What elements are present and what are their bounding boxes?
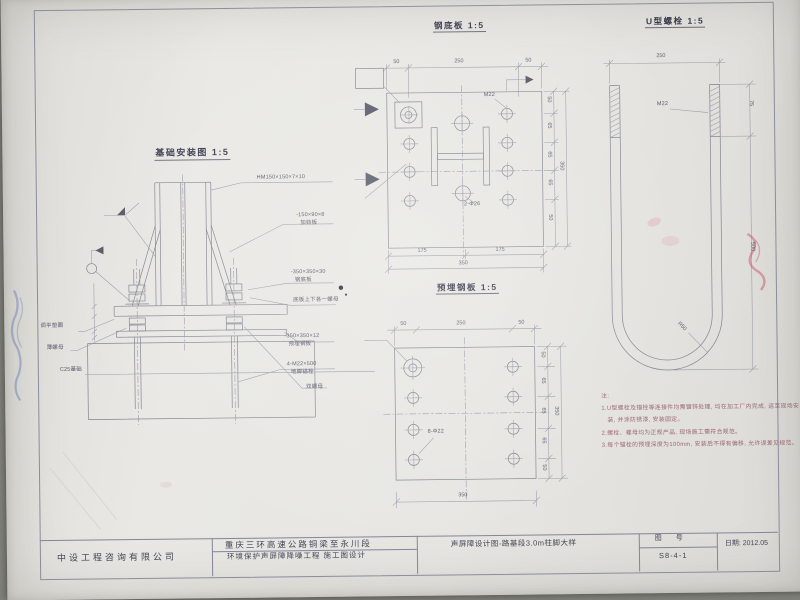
base-plate-title-text: 钢底板 (434, 20, 464, 30)
blue-stamp-mark (12, 290, 21, 400)
dim-bp-right-4: 65 (547, 179, 553, 185)
base-plate-view-lines (355, 62, 571, 274)
dim-bp-right-total: 350 (558, 161, 564, 170)
callout-baseplate-size: -350×350×30 (291, 269, 326, 275)
foundation-title-text: 基础安装图 (155, 147, 208, 158)
drawing-content: 基础安装图 1:5 钢底板 1:5 预埋钢板 1:5 U型螺栓 1:5 HM15… (1, 0, 800, 600)
callout-bp-hole-top: M22 (484, 92, 495, 98)
callout-thin-nut: 薄螺母 (47, 345, 64, 351)
dim-ub-leg-length: 500 (749, 242, 755, 251)
dim-ep-right-5: 50 (541, 464, 547, 470)
callout-column-section: HM150×150×7×10 (257, 174, 306, 181)
dim-bp-right-2: 65 (546, 122, 552, 128)
project-name-line2: 环境保护声屏障降噪工程 施工图设计 (227, 551, 366, 561)
section-cut-arrows (354, 102, 380, 186)
sheet-number-label: 图 号 (655, 535, 689, 543)
callout-stiffener-name: 加劲板 (300, 220, 317, 226)
dim-ub-width: 250 (656, 53, 665, 59)
project-name-line1: 重庆三环高速公路铜梁至永川段 (225, 539, 372, 550)
embedded-plate-title-scale: 1:5 (481, 282, 498, 292)
weld-symbol-circle (86, 246, 130, 301)
drawing-linework (1, 0, 800, 600)
u-bolt-view-title: U型螺栓 1:5 (645, 17, 705, 29)
dim-ep-right-4: 65 (541, 437, 547, 443)
dim-ep-top-3: 50 (518, 320, 524, 326)
callout-bp-hole-center: 2-Φ26 (464, 201, 480, 207)
date-value: 日期: 2012.05 (725, 540, 768, 548)
weld-symbol-top-right (507, 76, 534, 91)
dim-bp-bottom-1: 175 (417, 248, 426, 254)
company-name: 中设工程咨询有限公司 (57, 553, 177, 564)
callout-embed-name: 预埋钢板 (289, 341, 312, 347)
callout-anchor-size: 4-M22×500 (287, 361, 317, 367)
dim-bp-right-5: 50 (547, 214, 553, 220)
callout-stiffener-size: -150×90×8 (296, 212, 324, 218)
dim-ep-right-total: 350 (553, 406, 559, 415)
callout-concrete: C25基础 (60, 367, 82, 373)
note-line: 装, 并涂防锈漆, 安装固定。 (607, 417, 683, 424)
embedded-plate-view-lines (364, 324, 568, 508)
dim-bp-right-3: 65 (546, 151, 552, 157)
paper-sheet: 基础安装图 1:5 钢底板 1:5 预埋钢板 1:5 U型螺栓 1:5 HM15… (1, 0, 800, 600)
dim-ep-right-2: 65 (540, 377, 546, 383)
dim-ep-top-1: 50 (400, 321, 406, 327)
u-bolt-title-text: U型螺栓 (646, 16, 684, 26)
dim-ep-top-2: 250 (456, 320, 465, 326)
scanned-drawing-page: 基础安装图 1:5 钢底板 1:5 预埋钢板 1:5 U型螺栓 1:5 HM15… (0, 0, 800, 600)
foundation-view-title: 基础安装图 1:5 (154, 148, 230, 161)
dim-bp-top-2: 250 (454, 58, 463, 64)
callout-ub-thread: M22 (657, 101, 668, 107)
embedded-plate-view-title: 预埋钢板 1:5 (436, 283, 499, 295)
u-bolt-title-scale: 1:5 (687, 16, 704, 26)
base-plate-view-title: 钢底板 1:5 (433, 21, 486, 33)
dim-ep-right-1: 50 (540, 351, 546, 357)
dim-bp-bottom-2: 175 (495, 247, 504, 253)
callout-double-nut: 双螺母 (306, 384, 323, 390)
dim-ep-right-3: 65 (540, 407, 546, 413)
foundation-title-scale: 1:5 (212, 147, 230, 157)
scan-artifacts (11, 215, 767, 531)
callout-anchor-name: 地脚锚栓 (291, 369, 314, 375)
dim-bp-top-1: 50 (393, 59, 399, 65)
callout-washer: 调平垫圈 (40, 323, 63, 329)
dim-bp-top-3: 50 (525, 58, 531, 64)
dim-bp-right-1: 50 (546, 96, 552, 102)
weld-symbol-flag (104, 203, 156, 258)
notes-heading: 注: (601, 394, 609, 400)
sheet-number-value: S8-4-1 (659, 552, 688, 561)
dim-ub-thread-length: 75 (748, 100, 754, 106)
drawing-title: 声屏障设计图-路基段3.0m柱脚大样 (451, 539, 577, 549)
callout-baseplate-name: 钢底板 (295, 277, 312, 283)
embedded-plate-title-text: 预埋钢板 (437, 282, 477, 292)
dim-bp-bottom-total: 350 (459, 260, 468, 266)
dim-ep-bottom-total: 350 (458, 492, 467, 498)
base-plate-title-scale: 1:5 (468, 20, 485, 30)
callout-embed-size: -350×350×12 (284, 333, 319, 339)
callout-ep-holes: 8-Φ22 (428, 429, 444, 435)
callout-nuts-note: 底板上下各一螺母 (293, 297, 339, 304)
